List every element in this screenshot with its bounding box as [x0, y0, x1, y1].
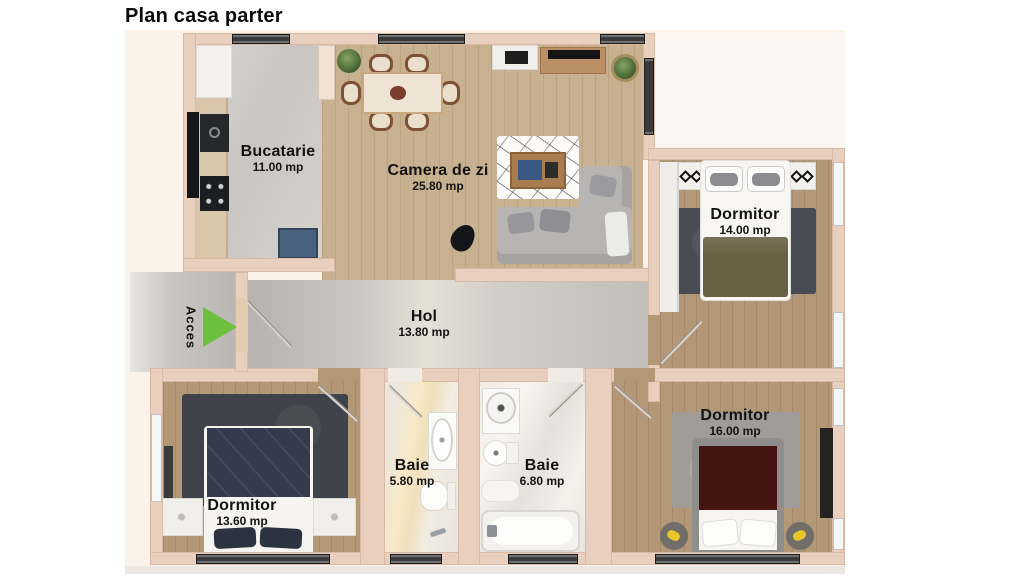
sink-basin	[431, 418, 453, 462]
tv-cabinet	[540, 47, 606, 74]
window-bedroom-right-1	[833, 162, 844, 226]
lamp-icon	[792, 529, 808, 543]
nightstand	[786, 522, 814, 550]
room-label-baie-large: Baie 6.80 mp	[520, 457, 565, 488]
bathtub-basin	[490, 517, 573, 545]
dining-chair	[369, 111, 393, 131]
wall-middle-horizontal	[150, 368, 845, 382]
bedroom-left-door	[318, 368, 360, 382]
exterior-area	[655, 33, 845, 148]
plan-bottom-edge	[125, 566, 845, 574]
bathtub	[481, 510, 580, 552]
bathtub-faucet	[487, 525, 497, 537]
bedroom-bottom-door	[614, 368, 655, 382]
wall-bath-bedroom-divider	[585, 368, 612, 565]
nightstand	[660, 522, 688, 550]
coffee-table-decor	[545, 162, 558, 178]
sofa-pillow	[507, 211, 536, 234]
window-bedroom-left-side	[151, 414, 162, 502]
room-label-dormitor-left: Dormitor 13.60 mp	[207, 497, 276, 528]
table-centerpiece	[390, 86, 406, 100]
window-bedroom-left-bottom	[196, 554, 330, 564]
bed-blanket	[699, 446, 777, 510]
wall-living-bottom	[455, 268, 660, 282]
window-living-right	[644, 58, 654, 135]
wall-kitchen-living-stub	[318, 45, 335, 100]
bed-blanket	[207, 428, 310, 497]
plant-icon	[611, 54, 639, 82]
room-label-dormitor-right: Dormitor 14.00 mp	[710, 206, 779, 237]
sofa-pillow	[588, 174, 617, 198]
access-label: Acces	[184, 298, 199, 358]
window-living-top	[378, 34, 465, 44]
entry-door	[236, 298, 248, 352]
nightstand	[313, 498, 356, 536]
bed-pillow	[739, 518, 777, 547]
kitchen-table	[278, 228, 318, 259]
nightstand	[160, 498, 203, 536]
wall-bedroom-right-left	[648, 160, 660, 402]
room-label-baie-small: Baie 5.80 mp	[390, 457, 435, 488]
kitchen-fridge	[187, 112, 199, 198]
room-label-bucatarie: Bucatarie 11.00 mp	[241, 143, 316, 174]
bed-blanket	[703, 237, 788, 297]
tv-icon	[548, 50, 600, 59]
coffee-table	[510, 152, 566, 189]
room-label-hol: Hol 13.80 mp	[398, 308, 449, 339]
bed-pillow	[260, 527, 303, 549]
bed-pillow	[214, 527, 257, 549]
dining-chair	[341, 81, 361, 105]
wall-bath-bath-divider	[458, 368, 480, 565]
window-bedroom-bottom-2	[833, 518, 844, 550]
room-label-dormitor-bottom: Dormitor 16.00 mp	[700, 407, 769, 438]
floor-plan: Acces Bucatarie 11.00 mp Camera de zi 25…	[125, 30, 845, 566]
plant-icon	[337, 49, 361, 73]
kitchen-stove	[200, 176, 229, 211]
wall-bedroom-bath-divider	[360, 368, 385, 565]
bath-mat	[481, 480, 520, 502]
desk	[492, 45, 538, 70]
radiator	[164, 446, 173, 498]
window-kitchen-top	[232, 34, 290, 44]
bed-cushion	[752, 173, 780, 186]
wardrobe	[820, 428, 833, 518]
window-bedroom-right-2	[833, 312, 844, 368]
dining-chair	[405, 111, 429, 131]
wall-art-frames	[787, 162, 816, 190]
window-bathroom-small-bottom	[390, 554, 442, 564]
kitchen-sink	[200, 114, 229, 152]
bathroom-large-door	[548, 368, 583, 382]
access-arrow-icon	[203, 307, 237, 347]
wall-kitchen-bottom	[183, 258, 335, 272]
kitchen-corner-cabinet	[196, 45, 232, 98]
bathroom-small-door	[388, 368, 422, 382]
bedroom-right-door	[648, 315, 660, 365]
sink-basin	[486, 392, 516, 424]
dining-chair	[405, 54, 429, 74]
sink-basin-icon	[209, 127, 220, 138]
sofa-throw-blanket	[604, 211, 629, 256]
window-bedroom-bottom-1	[833, 388, 844, 426]
coffee-table-tray	[518, 160, 542, 180]
page-title: Plan casa parter	[125, 5, 283, 28]
dining-table	[362, 72, 443, 114]
window-living-top-2	[600, 34, 645, 44]
wall-bedroom-right-top	[648, 148, 845, 160]
toilet-tank	[447, 482, 456, 510]
bed-pillow	[701, 518, 740, 548]
lamp-icon	[666, 528, 682, 542]
sofa-pillow	[539, 208, 571, 233]
dining-chair	[440, 81, 460, 105]
laptop-icon	[505, 51, 528, 64]
window-bedroom-bottom-edge	[655, 554, 800, 564]
room-label-camera-de-zi: Camera de zi 25.80 mp	[387, 162, 488, 193]
wardrobe	[660, 162, 679, 312]
bed-cushion	[710, 173, 738, 186]
window-bathroom-large-bottom	[508, 554, 578, 564]
dining-chair	[369, 54, 393, 74]
toilet-tank	[506, 442, 519, 464]
